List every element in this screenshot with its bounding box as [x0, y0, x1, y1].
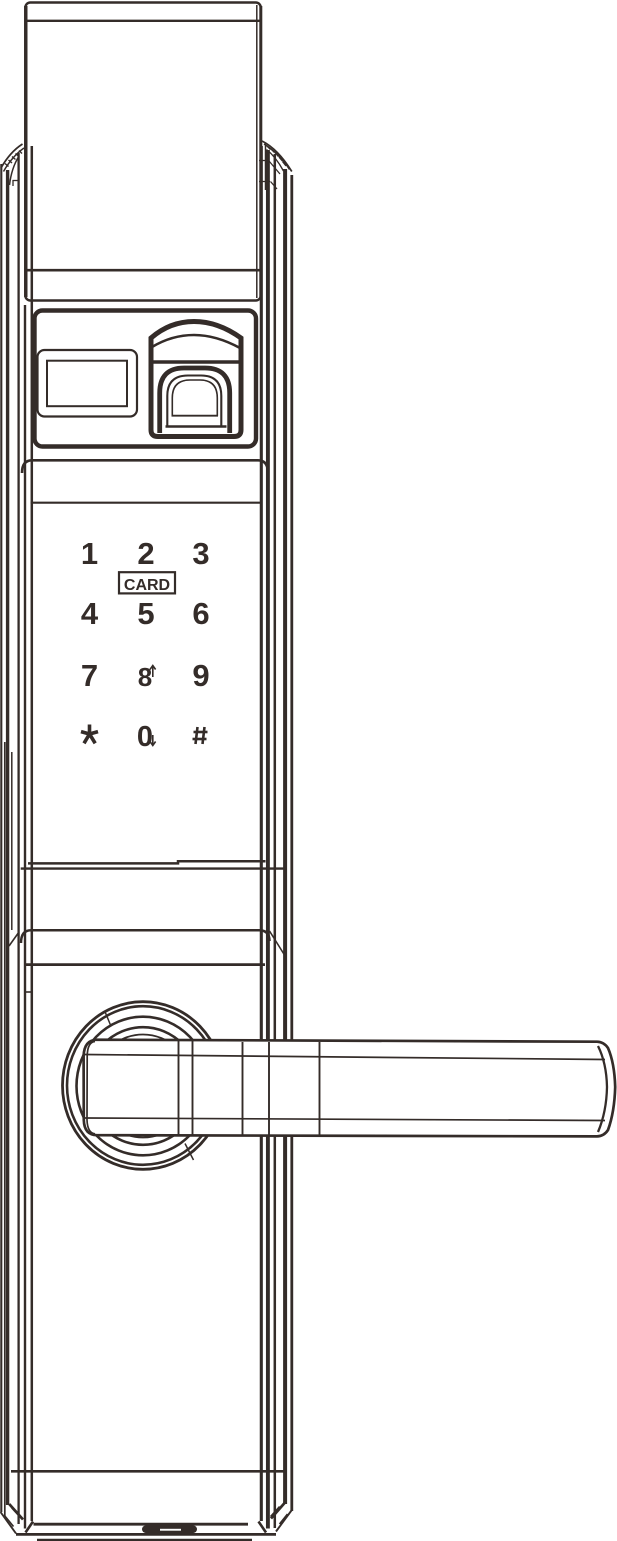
svg-text:0: 0	[137, 721, 153, 753]
svg-text:4: 4	[81, 596, 99, 631]
svg-text:8: 8	[138, 662, 152, 692]
svg-text:9: 9	[192, 658, 209, 693]
svg-text:3: 3	[192, 536, 209, 571]
svg-text:7: 7	[81, 658, 98, 693]
svg-text:6: 6	[192, 596, 209, 631]
svg-text:1: 1	[81, 536, 98, 571]
svg-text:5: 5	[137, 596, 154, 631]
svg-text:2: 2	[137, 536, 154, 571]
svg-text:CARD: CARD	[124, 577, 170, 594]
